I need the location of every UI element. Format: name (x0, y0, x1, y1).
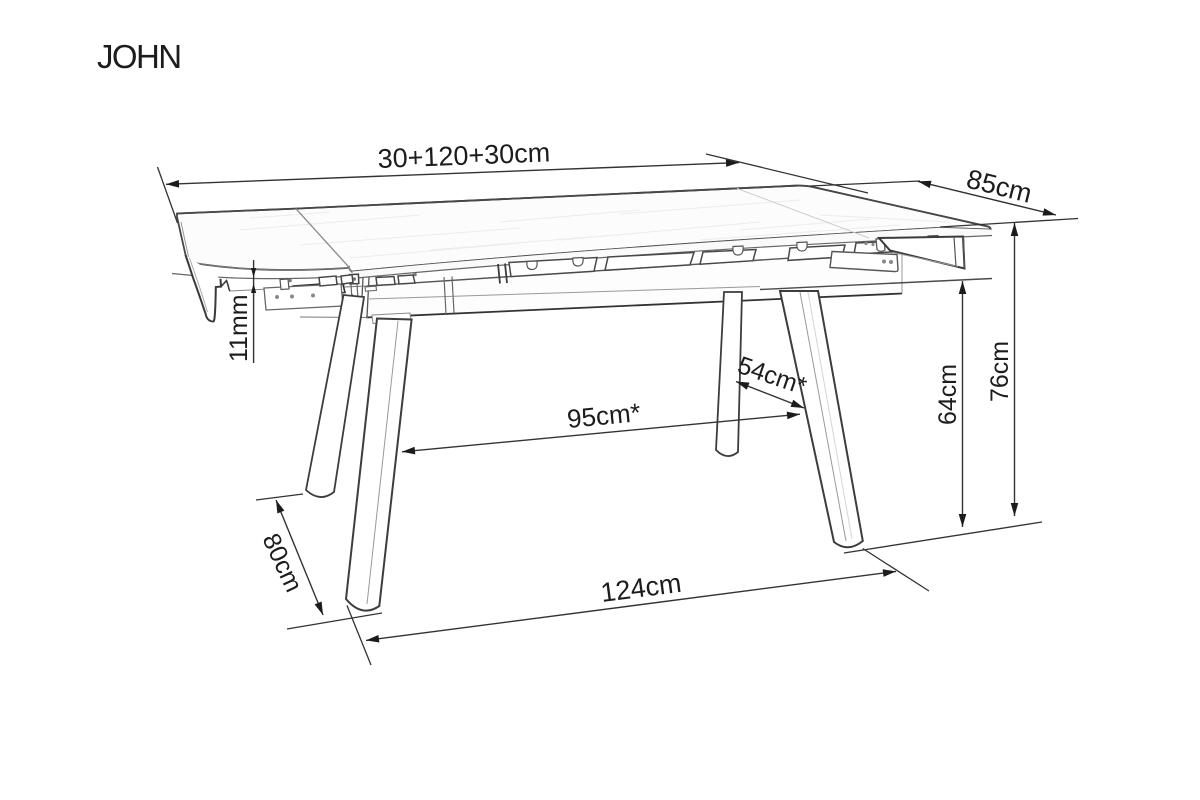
svg-text:11mm: 11mm (225, 294, 253, 362)
svg-text:76cm: 76cm (986, 341, 1014, 402)
svg-text:95cm*: 95cm* (566, 397, 642, 434)
svg-text:64cm: 64cm (934, 364, 962, 425)
svg-text:85cm: 85cm (964, 164, 1035, 209)
svg-text:30+120+30cm: 30+120+30cm (377, 137, 551, 174)
svg-text:80cm: 80cm (257, 529, 308, 596)
svg-text:JOHN: JOHN (97, 38, 180, 75)
svg-text:124cm: 124cm (599, 568, 683, 608)
